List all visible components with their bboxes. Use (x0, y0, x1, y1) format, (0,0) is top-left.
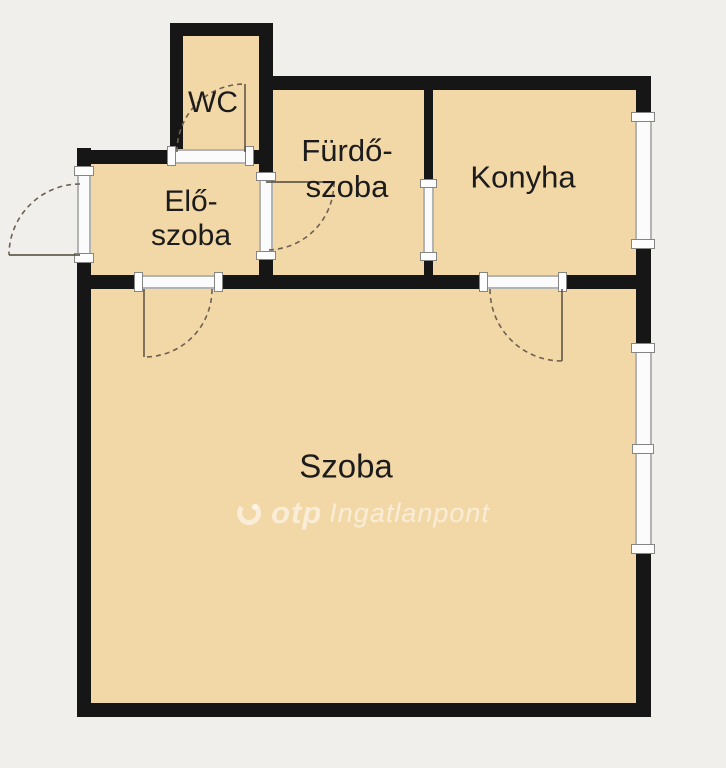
entrance-door-cap-top (74, 166, 94, 176)
kitchen-window-cap-top (631, 112, 655, 122)
wall-hall-top (77, 150, 172, 164)
otp-logo-icon (234, 498, 264, 528)
room-label-bathroom: Fürdő- szoba (301, 133, 392, 205)
wall-wc-left (170, 23, 183, 151)
entrance-door-frame (77, 174, 91, 256)
kitchen-window (635, 117, 652, 246)
room-label-wc: WC (188, 86, 238, 120)
bathroom-door-cap-bottom (256, 251, 276, 260)
bathroom-door-frame (259, 178, 273, 258)
entrance-door-arc (9, 184, 80, 255)
watermark-brand: otp (271, 495, 322, 531)
wall-mid-right (563, 275, 651, 289)
room-label-main: Szoba (299, 449, 393, 486)
wc-door-cap-left (167, 146, 176, 166)
wall-right-middle (636, 245, 651, 349)
entrance-door-cap-bottom (74, 253, 94, 263)
room-window-cap-middle (632, 444, 654, 454)
kitchen-room-door-frame (484, 275, 563, 289)
watermark: otp Ingatlanpont (234, 495, 490, 531)
wall-mid-left (77, 275, 139, 289)
wall-bathroom-kitchen-upper (424, 90, 433, 183)
bathroom-door-cap-top (256, 172, 276, 181)
hall-room-door-frame (139, 275, 220, 289)
room-label-kitchen: Konyha (470, 161, 575, 196)
room-label-bathroom-line2: szoba (301, 169, 392, 205)
wall-right-lower (636, 551, 651, 717)
hall-room-door-cap-right (214, 272, 223, 292)
wall-left-lower (77, 256, 91, 717)
wc-door-cap-right (245, 146, 254, 166)
kitchen-room-door-cap-right (558, 272, 567, 292)
wall-wc-top (170, 23, 273, 36)
room-label-hall: Elő- szoba (151, 185, 231, 253)
room-label-hall-line1: Elő- (151, 185, 231, 219)
watermark-text: Ingatlanpont (329, 498, 490, 529)
hall-room-door-cap-left (134, 272, 143, 292)
wc-door-frame (172, 149, 248, 164)
bathroom-kitchen-opening-frame (423, 183, 434, 258)
room-window-cap-top (631, 343, 655, 353)
room-label-bathroom-line1: Fürdő- (301, 133, 392, 169)
kitchen-room-door-cap-left (479, 272, 488, 292)
wall-top-main (272, 76, 651, 90)
wall-bottom (77, 703, 651, 717)
kitchen-window-cap-bottom (631, 239, 655, 249)
bathroom-kitchen-cap-top (420, 179, 437, 188)
room-label-hall-line2: szoba (151, 219, 231, 253)
bathroom-kitchen-cap-bottom (420, 252, 437, 261)
wall-mid-center (220, 275, 484, 289)
room-window-cap-bottom (631, 544, 655, 554)
floor-plan: WC Fürdő- szoba Konyha Elő- szoba Szoba … (0, 0, 726, 768)
